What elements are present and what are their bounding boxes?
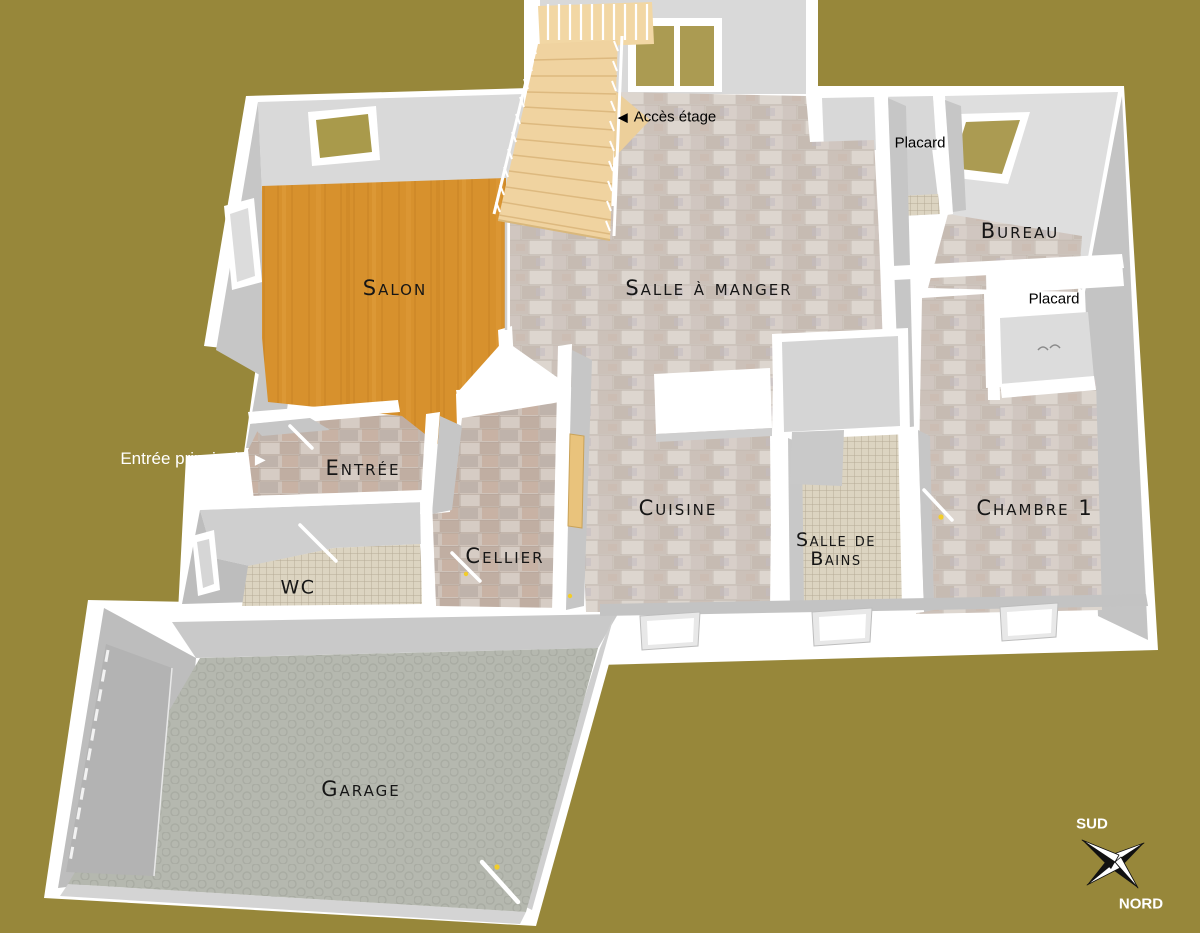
salon-roof-window-pane: [316, 114, 372, 158]
compass-south-label: SUD: [1076, 816, 1108, 833]
closet-label-hall: Placard: [895, 135, 946, 152]
annotation-acces-etage: ◀Accès étage: [618, 109, 717, 126]
sdb-label-line2: Bains: [810, 548, 861, 570]
room-label-salle-a-manger: Salle à manger: [625, 276, 792, 300]
room-label-wc: WC: [280, 579, 315, 598]
left-arrow-icon: ◀: [618, 110, 628, 125]
room-label-garage: Garage: [321, 777, 400, 801]
floorplan-scene: Salon Salle à manger Bureau Cuisine Sall…: [0, 0, 1200, 933]
kitchen-counter: [654, 368, 772, 434]
dining-window-pane-right: [680, 26, 714, 86]
acces-etage-text: Accès étage: [634, 109, 717, 126]
compass-north-label: NORD: [1119, 896, 1163, 913]
right-arrow-icon: ▶: [255, 451, 266, 467]
annotation-entree-principale: Entrée principale▶: [120, 449, 265, 469]
entree-principale-text: Entrée principale: [120, 449, 248, 468]
room-label-chambre-1: Chambre 1: [976, 496, 1093, 520]
room-label-salon: Salon: [363, 276, 427, 300]
room-label-cellier: Cellier: [465, 544, 544, 568]
room-label-entree: Entrée: [325, 456, 400, 480]
closet-label-chambre: Placard: [1029, 291, 1080, 308]
room-label-salle-de-bains: Salle de Bains: [796, 531, 876, 569]
cellier-kitchen-door-panel: [568, 434, 584, 528]
room-label-cuisine: Cuisine: [639, 496, 718, 520]
sdb-fixture: [790, 430, 844, 486]
room-label-bureau: Bureau: [981, 219, 1060, 243]
